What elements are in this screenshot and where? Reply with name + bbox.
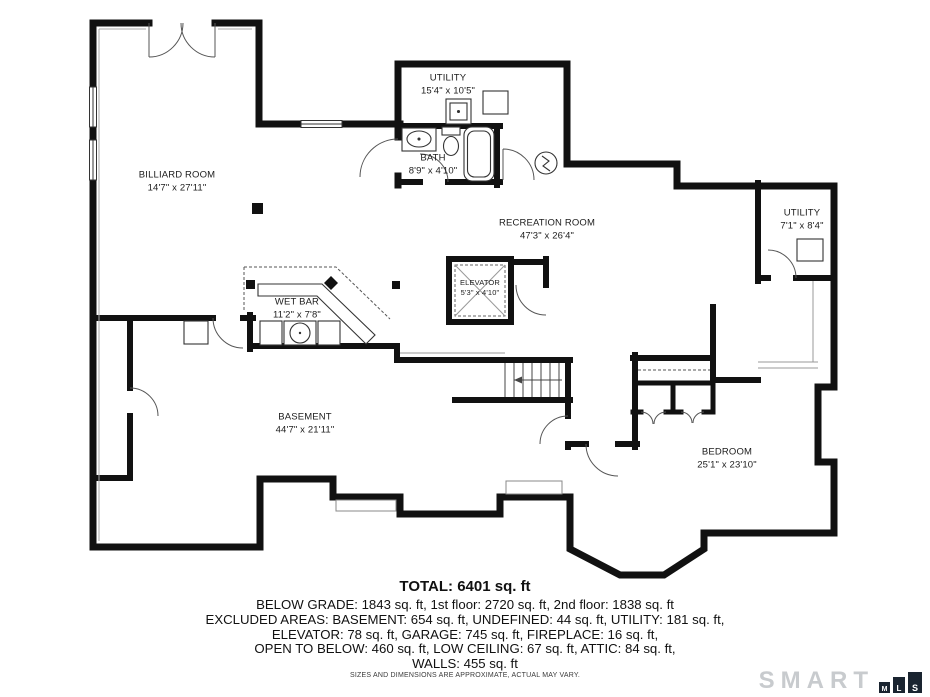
equipment-icon: [483, 91, 508, 114]
door-icon: [768, 250, 796, 278]
post-icon: [246, 280, 255, 289]
logo-block-l: L: [893, 677, 905, 693]
room-dims: 14'7" x 27'11": [139, 182, 215, 195]
floorplan-page: BILLIARD ROOM 14'7" x 27'11" UTILITY 15'…: [0, 0, 930, 697]
room-name: BEDROOM: [697, 446, 757, 459]
logo-brand-text: SMART: [759, 669, 874, 693]
total-area: TOTAL: 6401 sq. ft: [0, 578, 930, 595]
double-door-icon: [149, 23, 183, 57]
door-icon: [503, 149, 534, 180]
area-summary: TOTAL: 6401 sq. ft BELOW GRADE: 1843 sq.…: [0, 578, 930, 672]
logo-block-s: S: [908, 672, 922, 693]
room-name: BATH: [409, 152, 458, 165]
summary-line: OPEN TO BELOW: 460 sq. ft, LOW CEILING: …: [0, 642, 930, 657]
room-name: UTILITY: [421, 72, 475, 85]
room-label-wet-bar: WET BAR 11'2" x 7'8": [273, 296, 321, 321]
bathtub-inner: [468, 131, 491, 177]
summary-line: ELEVATOR: 78 sq. ft, GARAGE: 745 sq. ft,…: [0, 628, 930, 643]
cabinet-icon: [318, 321, 340, 345]
smartmls-logo: SMART M L S: [759, 669, 922, 693]
column-icon: [252, 203, 263, 214]
room-dims: 8'9" x 4'10": [409, 165, 458, 178]
room-name: WET BAR: [273, 296, 321, 309]
logo-block-m: M: [879, 682, 890, 693]
door-icon: [540, 416, 568, 444]
room-name: ELEVATOR: [460, 278, 500, 288]
room-dims: 15'4" x 10'5": [421, 85, 475, 98]
door-icon: [360, 139, 398, 177]
cabinet-icon: [260, 321, 282, 345]
room-label-bedroom: BEDROOM 25'1" x 23'10": [697, 446, 757, 471]
double-door-icon: [181, 23, 215, 57]
room-name: UTILITY: [780, 207, 823, 220]
room-name: BASEMENT: [276, 411, 335, 424]
room-label-elevator: ELEVATOR 5'3" x 4'10": [460, 278, 500, 298]
door-icon: [130, 388, 158, 416]
windows: [90, 87, 343, 180]
freezer-icon: [184, 321, 208, 344]
room-label-recreation-room: RECREATION ROOM 47'3" x 26'4": [499, 217, 595, 242]
room-dims: 25'1" x 23'10": [697, 459, 757, 472]
room-label-basement: BASEMENT 44'7" x 21'11": [276, 411, 335, 436]
room-label-utility-top: UTILITY 15'4" x 10'5": [421, 72, 475, 97]
room-dims: 44'7" x 21'11": [276, 424, 335, 437]
logo-mls-blocks: M L S: [876, 672, 922, 693]
toilet-tank-icon: [442, 127, 460, 135]
room-dims: 5'3" x 4'10": [460, 288, 500, 298]
door-icon: [586, 444, 618, 476]
column-icon: [392, 281, 400, 289]
room-name: RECREATION ROOM: [499, 217, 595, 230]
room-dims: 11'2" x 7'8": [273, 309, 321, 322]
columns: [252, 203, 400, 289]
door-icon: [516, 285, 546, 315]
equipment-icon: [797, 239, 823, 261]
door-icon: [213, 318, 243, 348]
room-label-billiard-room: BILLIARD ROOM 14'7" x 27'11": [139, 169, 215, 194]
room-label-utility-right: UTILITY 7'1" x 8'4": [780, 207, 823, 232]
summary-line: EXCLUDED AREAS: BASEMENT: 654 sq. ft, UN…: [0, 613, 930, 628]
summary-line: BELOW GRADE: 1843 sq. ft, 1st floor: 272…: [0, 598, 930, 613]
room-dims: 7'1" x 8'4": [780, 220, 823, 233]
room-dims: 47'3" x 26'4": [499, 230, 595, 243]
room-label-bath: BATH 8'9" x 4'10": [409, 152, 458, 177]
room-name: BILLIARD ROOM: [139, 169, 215, 182]
stairs-direction-arrow: [514, 377, 522, 384]
